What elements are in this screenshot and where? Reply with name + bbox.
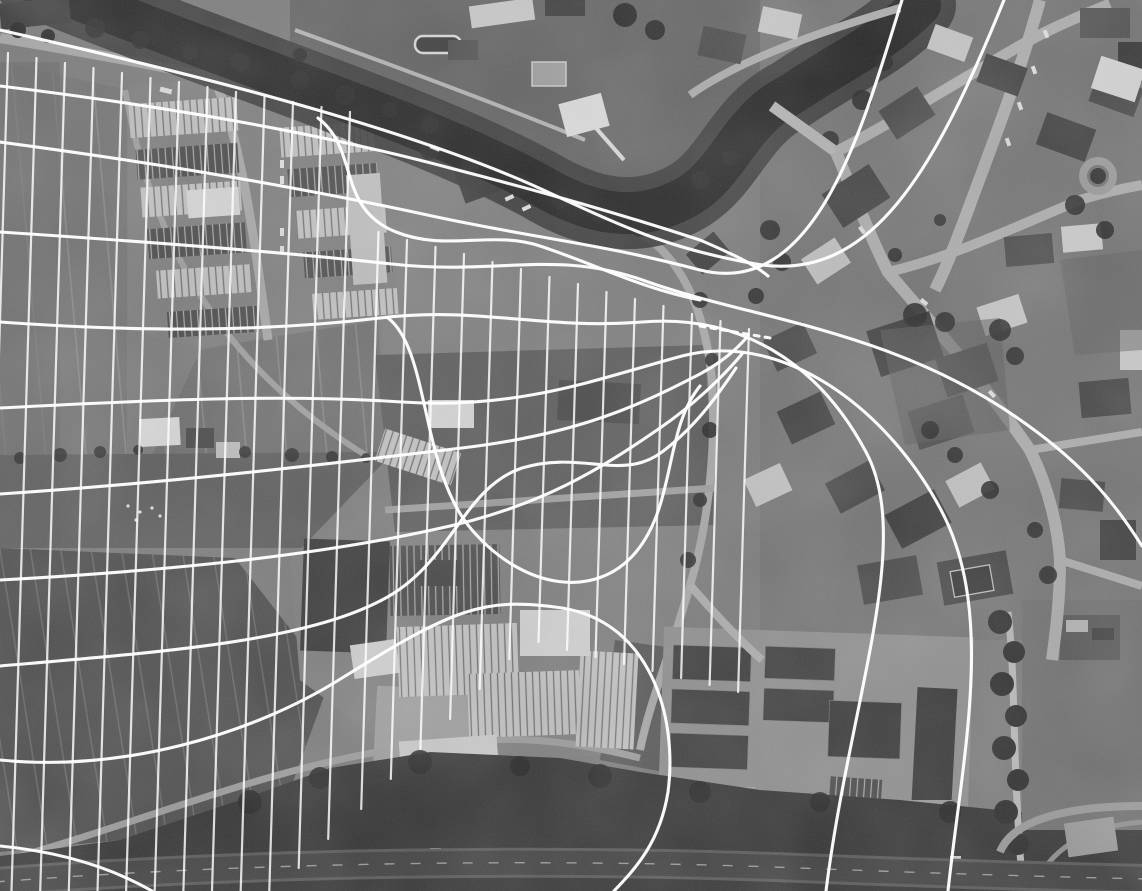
aerial-photo-backdrop <box>0 0 1142 891</box>
aerial-map-screenshot <box>0 0 1142 891</box>
photo-grain-texture <box>0 0 1142 891</box>
aerial-map <box>0 0 1142 891</box>
